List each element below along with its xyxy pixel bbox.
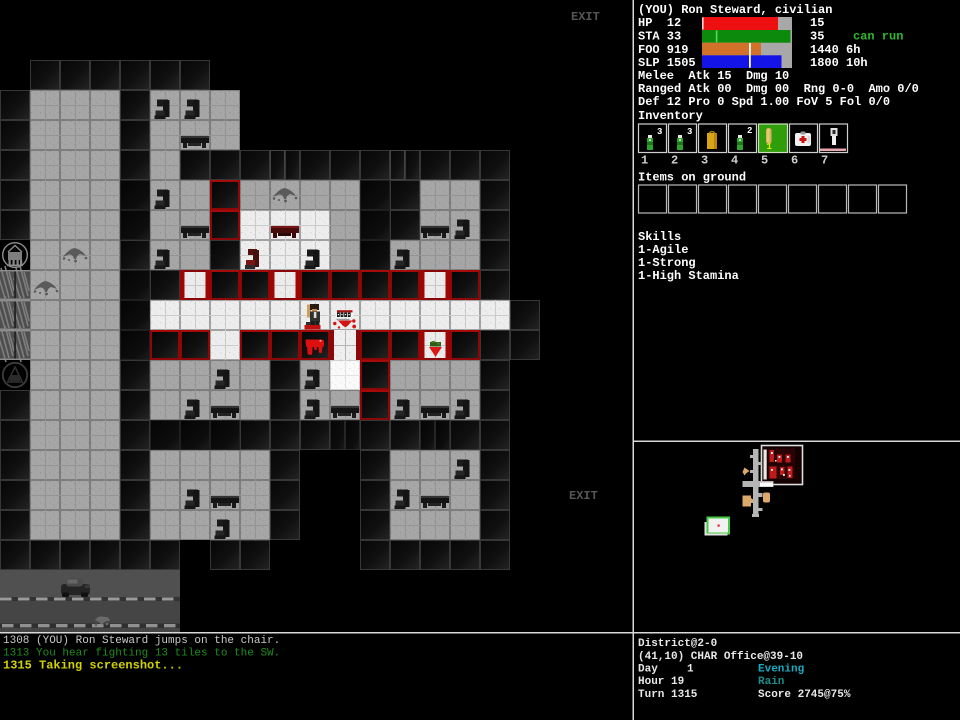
svg-text:2: 2 (747, 126, 752, 136)
svg-text:1-High Stamina: 1-High Stamina (638, 269, 739, 283)
svg-text:3: 3 (687, 127, 692, 137)
svg-text:3: 3 (701, 154, 708, 168)
svg-text:Rain: Rain (758, 676, 784, 688)
svg-text:Hour 19: Hour 19 (638, 676, 684, 688)
svg-text:4: 4 (731, 154, 738, 168)
svg-text:HP 12: HP 12 (638, 16, 681, 30)
svg-text:1: 1 (641, 154, 648, 168)
svg-text:1800 10h: 1800 10h (810, 56, 868, 70)
svg-text:EXIT: EXIT (571, 10, 600, 24)
svg-text:Def 12 Pro 0 Spd 1.00 FoV 5 Fo: Def 12 Pro 0 Spd 1.00 FoV 5 Fol 0/0 (638, 95, 890, 109)
svg-text:35: 35 (810, 30, 824, 44)
svg-text:Melee Atk 15 Dmg 10: Melee Atk 15 Dmg 10 (638, 69, 789, 83)
svg-text:Ranged Atk 00 Dmg 00 Rng 0-0: Ranged Atk 00 Dmg 00 Rng 0-0 Amo 0/0 (638, 82, 919, 96)
svg-text:15: 15 (810, 16, 824, 30)
svg-text:(41,10) CHAR Office@39-10: (41,10) CHAR Office@39-10 (638, 651, 803, 663)
svg-text:Evening: Evening (758, 664, 804, 676)
svg-text:District@2-0: District@2-0 (638, 638, 717, 650)
svg-text:7: 7 (821, 154, 828, 168)
svg-text:Score 2745@75%: Score 2745@75% (758, 689, 851, 701)
svg-text:FOO 919: FOO 919 (638, 43, 688, 57)
svg-text:STA 33: STA 33 (638, 30, 681, 44)
svg-text:1-Agile: 1-Agile (638, 243, 688, 257)
svg-text:1-Strong: 1-Strong (638, 256, 696, 270)
svg-text:6: 6 (791, 154, 798, 168)
svg-text:Items on ground: Items on ground (638, 171, 746, 185)
svg-text:1: 1 (687, 664, 694, 676)
svg-text:can run: can run (853, 30, 903, 44)
svg-text:5: 5 (761, 154, 768, 168)
svg-text:Day: Day (638, 664, 658, 676)
svg-text:1: 1 (767, 142, 773, 152)
svg-text:2: 2 (671, 154, 678, 168)
svg-text:Turn 1315: Turn 1315 (638, 689, 698, 701)
svg-text:1308 (YOU) Ron Steward jumps o: 1308 (YOU) Ron Steward jumps on the chai… (3, 635, 280, 647)
svg-text:Skills: Skills (638, 230, 681, 244)
svg-text:EXIT: EXIT (569, 489, 598, 503)
svg-text:Inventory: Inventory (638, 109, 703, 123)
svg-text:1315 Taking screenshot...: 1315 Taking screenshot... (3, 659, 183, 673)
svg-text:1440 6h: 1440 6h (810, 43, 860, 57)
svg-text:(YOU) Ron Steward, civilian: (YOU) Ron Steward, civilian (638, 3, 832, 17)
svg-text:SLP 1505: SLP 1505 (638, 56, 696, 70)
svg-text:3: 3 (657, 127, 662, 137)
